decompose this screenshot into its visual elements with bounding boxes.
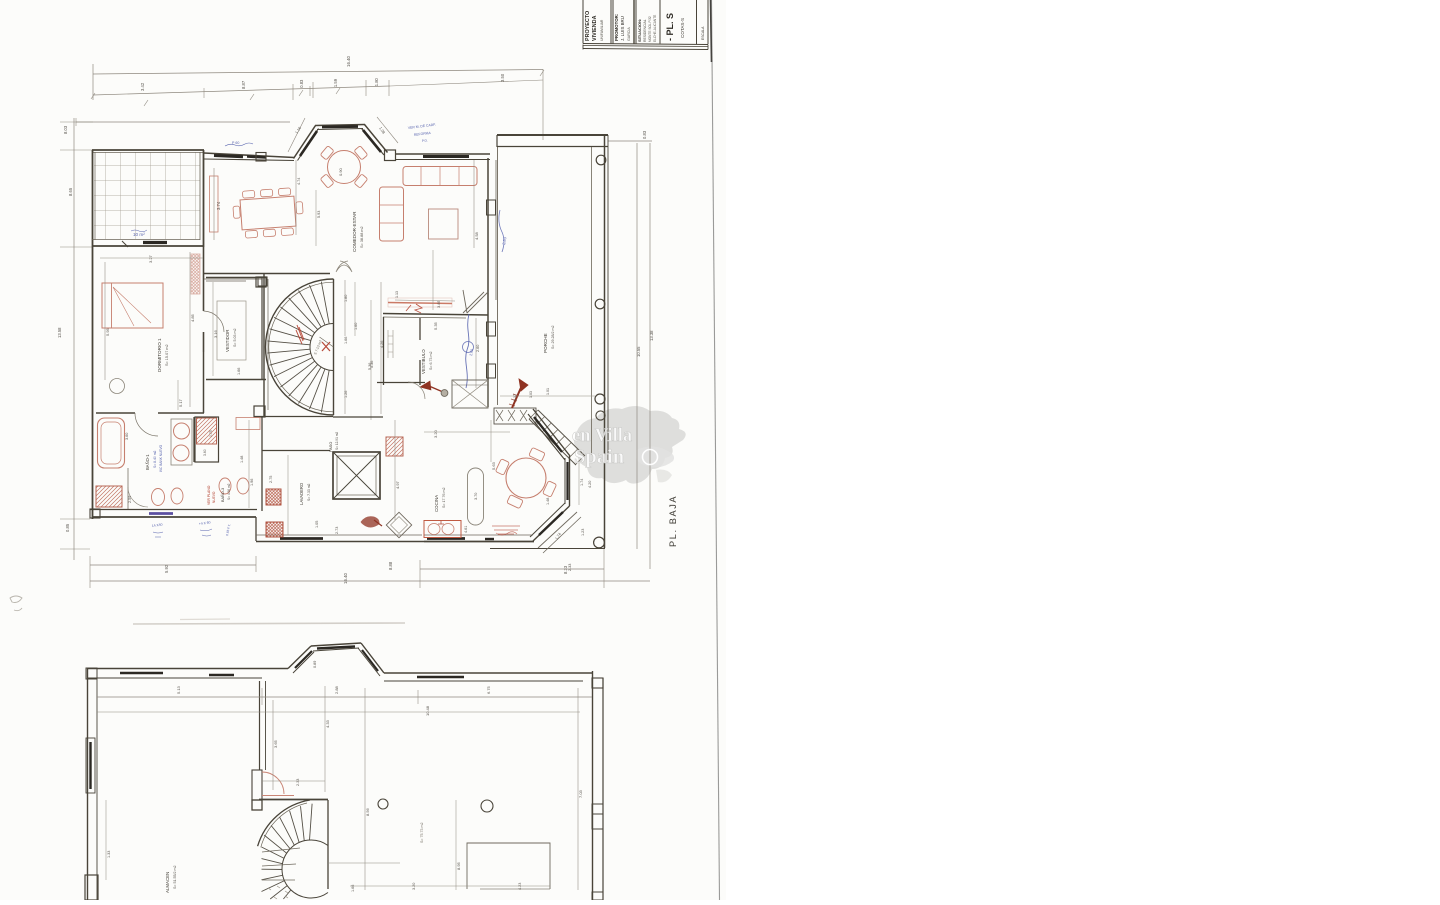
svg-text:1.96: 1.96	[250, 479, 254, 486]
svg-text:COMEDOR-ESTAR: COMEDOR-ESTAR	[352, 211, 357, 252]
svg-text:1.17: 1.17	[513, 394, 517, 401]
svg-text:8.87: 8.87	[241, 80, 246, 89]
svg-text:UNIFAMILIAR: UNIFAMILIAR	[600, 19, 604, 41]
svg-text:2.59: 2.59	[128, 496, 132, 503]
svg-text:COTAS-S: COTAS-S	[680, 18, 685, 38]
svg-text:S= 5.03 m2: S= 5.03 m2	[233, 329, 237, 347]
svg-text:PROMOTOR:: PROMOTOR:	[614, 13, 619, 41]
svg-text:10 m²: 10 m²	[133, 232, 145, 237]
svg-text:4.23: 4.23	[518, 883, 522, 890]
svg-text:4.20: 4.20	[588, 481, 592, 488]
svg-text:J. LUIS BRU: J. LUIS BRU	[620, 16, 625, 41]
svg-text:S= 51.55/2 m2: S= 51.55/2 m2	[173, 866, 177, 889]
svg-text:3.60: 3.60	[203, 449, 207, 456]
svg-text:1.48: 1.48	[240, 456, 244, 463]
svg-text:MONTE SOL P.32: MONTE SOL P.32	[648, 16, 652, 42]
svg-text:S= 12.91 m2: S= 12.91 m2	[335, 432, 339, 450]
svg-text:PORCHE: PORCHE	[543, 333, 548, 353]
svg-text:WC BANK NUEVO: WC BANK NUEVO	[159, 444, 163, 472]
svg-text:S= 17.76 m2: S= 17.76 m2	[442, 488, 446, 508]
svg-text:5.17: 5.17	[178, 398, 183, 407]
svg-text:4.61: 4.61	[464, 526, 468, 533]
svg-text:8.88: 8.88	[388, 561, 393, 570]
svg-text:P.G.: P.G.	[422, 138, 429, 143]
svg-text:ELCHE-ALICANTE: ELCHE-ALICANTE	[653, 15, 657, 42]
svg-text:5.35: 5.35	[433, 321, 438, 330]
svg-text:16.40: 16.40	[343, 572, 348, 584]
svg-text:3.20: 3.20	[433, 429, 438, 438]
svg-text:DORMITORIO 1: DORMITORIO 1	[157, 338, 162, 372]
svg-text:0.89: 0.89	[313, 661, 317, 668]
svg-text:3.20: 3.20	[412, 883, 416, 890]
svg-text:VESTIBULO: VESTIBULO	[421, 349, 426, 374]
svg-text:S= 4.96 m2: S= 4.96 m2	[227, 483, 231, 500]
svg-text:5.93: 5.93	[317, 211, 321, 218]
svg-text:PROYECTO: PROYECTO	[585, 11, 591, 41]
svg-text:3.16: 3.16	[213, 329, 218, 338]
svg-text:1.80: 1.80	[344, 295, 348, 302]
svg-text:1.03: 1.03	[529, 391, 533, 398]
svg-text:4.85: 4.85	[190, 313, 195, 322]
svg-text:1.60: 1.60	[354, 323, 358, 330]
svg-text:3.65: 3.65	[273, 739, 278, 748]
svg-text:S= 8.40 m2: S= 8.40 m2	[153, 450, 157, 468]
svg-text:16.40: 16.40	[346, 55, 351, 67]
svg-text:5.92: 5.92	[164, 564, 169, 573]
svg-text:10.55: 10.55	[636, 346, 641, 357]
svg-text:S= 15.07 m2: S= 15.07 m2	[165, 344, 169, 366]
svg-text:2.88: 2.88	[334, 685, 339, 694]
svg-text:5.63: 5.63	[491, 461, 496, 470]
svg-text:2.75: 2.75	[269, 476, 273, 483]
svg-text:2.33: 2.33	[568, 564, 572, 571]
svg-text:VESTIDOR: VESTIDOR	[225, 330, 230, 352]
svg-text:8.56: 8.56	[365, 807, 370, 816]
svg-text:1.74: 1.74	[580, 479, 584, 486]
svg-text:5.95: 5.95	[105, 327, 110, 336]
svg-text:8.65: 8.65	[68, 187, 73, 196]
svg-text:S= 38.88 m2: S= 38.88 m2	[360, 226, 364, 248]
svg-text:PL. BAJA: PL. BAJA	[668, 495, 678, 547]
svg-text:8.03: 8.03	[63, 125, 68, 134]
svg-text:1.48: 1.48	[546, 498, 550, 505]
svg-text:3.74: 3.74	[216, 201, 221, 210]
svg-text:NUEVO: NUEVO	[212, 491, 216, 503]
svg-text:1.23: 1.23	[581, 529, 585, 536]
svg-text:RESIDENCIAL: RESIDENCIAL	[643, 19, 647, 42]
svg-text:BAÑO-1: BAÑO-1	[145, 454, 150, 470]
svg-text:2.33: 2.33	[296, 779, 300, 786]
svg-text:Spain: Spain	[574, 446, 625, 468]
svg-text:1.05: 1.05	[315, 521, 319, 528]
svg-text:5.13: 5.13	[176, 685, 181, 694]
svg-text:1.26: 1.26	[344, 391, 348, 398]
svg-text:0.83: 0.83	[642, 130, 647, 139]
svg-text:SITUACION:: SITUACION:	[637, 19, 642, 42]
svg-text:3.27: 3.27	[148, 254, 153, 263]
svg-text:5.36: 5.36	[368, 363, 372, 370]
svg-text:0.90: 0.90	[338, 167, 343, 176]
svg-text:1.33: 1.33	[107, 851, 111, 858]
svg-text:1.66: 1.66	[344, 337, 348, 344]
svg-text:COCINA: COCINA	[434, 495, 439, 512]
svg-text:- PL. S: - PL. S	[665, 13, 675, 41]
svg-text:1.66: 1.66	[351, 885, 355, 892]
svg-text:4.58: 4.58	[474, 231, 479, 240]
svg-text:1.13: 1.13	[395, 291, 399, 298]
svg-text:4.97: 4.97	[395, 480, 400, 489]
svg-text:13.38: 13.38	[649, 330, 654, 341]
svg-text:S= 75.73 m2: S= 75.73 m2	[420, 823, 424, 843]
svg-text:en Villa: en Villa	[572, 426, 632, 446]
svg-text:S= 29.28/2 m2: S= 29.28/2 m2	[551, 326, 555, 349]
svg-text:1.01: 1.01	[546, 388, 550, 395]
svg-text:2.60: 2.60	[476, 345, 480, 352]
svg-text:3.70: 3.70	[474, 493, 478, 500]
svg-text:ESCALA: ESCALA	[701, 26, 705, 40]
svg-text:10.48: 10.48	[425, 705, 430, 716]
svg-text:4.33: 4.33	[325, 719, 330, 728]
svg-text:S= 7.33 m2: S= 7.33 m2	[307, 483, 311, 501]
svg-text:13.58: 13.58	[57, 327, 62, 338]
svg-text:VER PLANO: VER PLANO	[207, 485, 211, 505]
svg-text:ALMACEN: ALMACEN	[165, 872, 170, 893]
svg-text:PASO: PASO	[329, 442, 333, 452]
svg-text:0.75: 0.75	[209, 430, 213, 437]
svg-text:3.50: 3.50	[500, 73, 505, 82]
svg-text:GARCIA: GARCIA	[627, 27, 631, 41]
svg-text:4.74: 4.74	[297, 178, 301, 185]
svg-text:S= 6.73 m2: S= 6.73 m2	[429, 352, 433, 370]
svg-text:1.80: 1.80	[374, 77, 379, 86]
svg-text:3.42: 3.42	[140, 82, 145, 91]
svg-text:1.59: 1.59	[333, 78, 338, 87]
svg-text:7.03: 7.03	[578, 789, 583, 798]
svg-text:VIVIENDA: VIVIENDA	[592, 15, 598, 41]
svg-text:P 60: P 60	[232, 141, 239, 145]
svg-text:8.95: 8.95	[456, 861, 461, 870]
svg-text:0.85: 0.85	[65, 523, 70, 532]
svg-text:6.75: 6.75	[486, 685, 491, 694]
svg-text:LAVADERO: LAVADERO	[299, 482, 304, 505]
svg-text:2.73: 2.73	[335, 527, 339, 534]
svg-text:1.66: 1.66	[237, 368, 241, 375]
svg-text:BAÑO-3: BAÑO-3	[220, 488, 225, 502]
svg-text:3.60: 3.60	[125, 433, 129, 440]
svg-text:0.83: 0.83	[299, 79, 304, 88]
